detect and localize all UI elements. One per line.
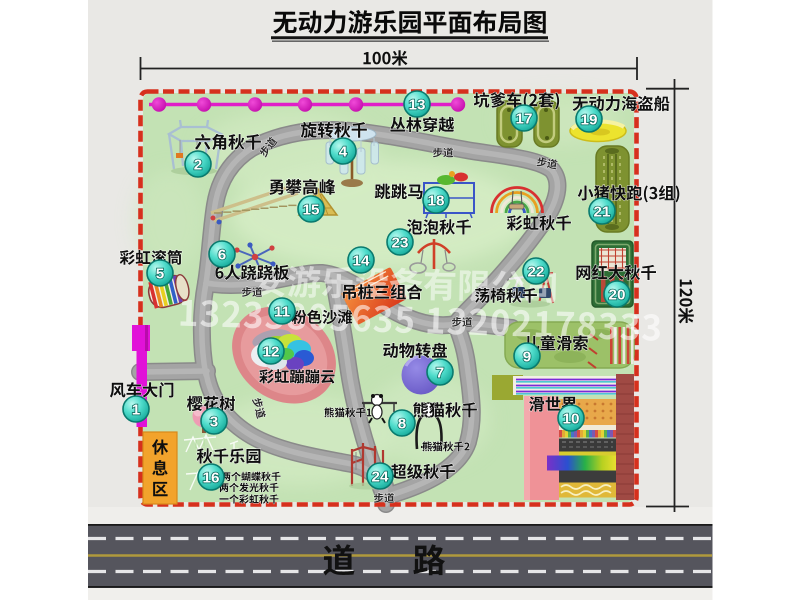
svg-text:24: 24 [372,469,389,486]
svg-text:13: 13 [409,97,426,114]
svg-text:6: 6 [218,247,226,264]
svg-text:16: 16 [203,470,220,487]
svg-text:1: 1 [132,402,141,419]
svg-text:7: 7 [436,365,444,382]
svg-text:8: 8 [398,416,406,433]
svg-text:9: 9 [523,349,531,366]
svg-text:10: 10 [563,411,580,428]
svg-text:4: 4 [339,144,348,161]
svg-text:20: 20 [609,287,626,304]
svg-text:19: 19 [581,112,598,129]
svg-text:22: 22 [528,264,545,281]
svg-text:3: 3 [210,414,218,431]
svg-text:11: 11 [274,304,291,321]
svg-text:23: 23 [392,235,409,252]
svg-text:2: 2 [194,157,202,174]
svg-text:21: 21 [594,204,611,221]
svg-text:18: 18 [428,193,445,210]
svg-text:5: 5 [156,266,165,283]
svg-text:17: 17 [516,111,533,128]
svg-text:15: 15 [303,202,320,219]
svg-text:12: 12 [263,344,280,361]
svg-text:14: 14 [353,253,370,270]
